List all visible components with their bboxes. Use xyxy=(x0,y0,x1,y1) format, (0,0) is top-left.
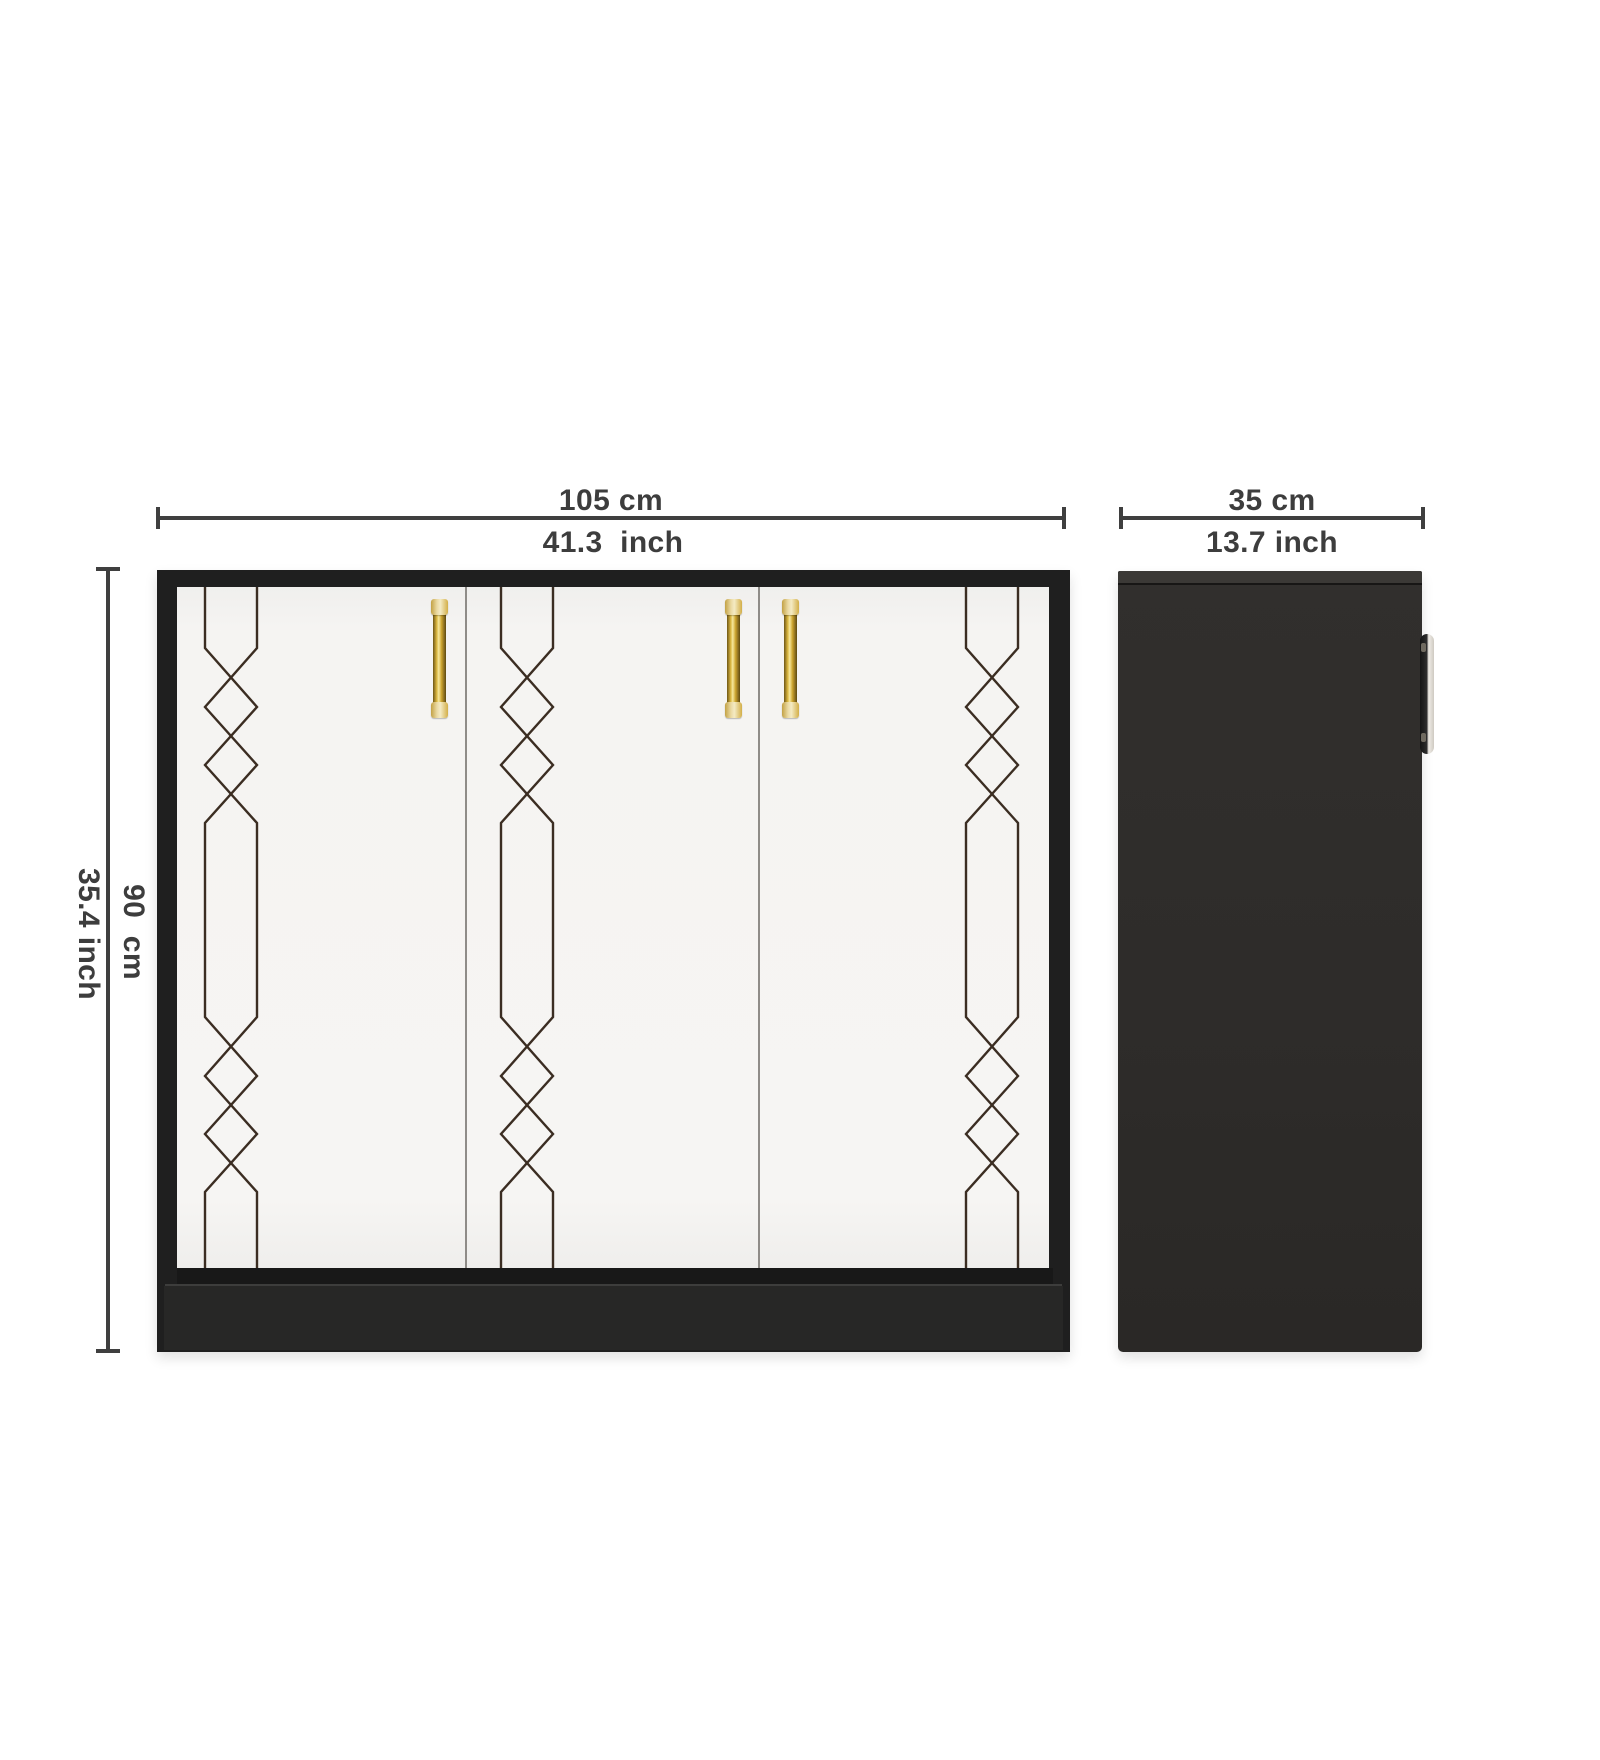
cabinet-bottom-rail xyxy=(177,1268,1053,1284)
side-depth-cm-label: 35 cm xyxy=(1228,484,1315,518)
side-depth-inch-label: 13.7 inch xyxy=(1206,526,1338,560)
front-width-dimension-line xyxy=(156,516,1066,520)
product-dimension-diagram: 105 cm 41.3 inch 35 cm 13.7 inch 35.4 in… xyxy=(0,0,1600,1760)
side-top-edge xyxy=(1118,571,1422,585)
door-pattern xyxy=(203,587,259,1268)
door-right xyxy=(758,587,1049,1268)
door-handle-middle xyxy=(727,600,740,717)
front-width-cm-label: 105 cm xyxy=(559,484,663,518)
door-middle xyxy=(465,587,758,1268)
cabinet-plinth xyxy=(164,1286,1063,1350)
front-height-dimension-line xyxy=(106,567,110,1353)
cabinet-side-view xyxy=(1118,571,1422,1352)
door-handle-left xyxy=(433,600,446,717)
front-height-cm-label: 90 cm xyxy=(116,884,150,980)
front-width-inch-label: 41.3 inch xyxy=(543,526,684,560)
door-pattern xyxy=(499,587,555,1268)
side-handle-profile xyxy=(1420,634,1434,754)
door-row xyxy=(177,587,1053,1268)
door-pattern xyxy=(964,587,1020,1268)
plinth-separation-line xyxy=(165,1284,1062,1286)
door-handle-right xyxy=(784,600,797,717)
cabinet-front-view xyxy=(157,570,1070,1352)
front-height-inch-label: 35.4 inch xyxy=(71,868,105,1000)
side-depth-dimension-line xyxy=(1119,516,1425,520)
door-left xyxy=(177,587,465,1268)
